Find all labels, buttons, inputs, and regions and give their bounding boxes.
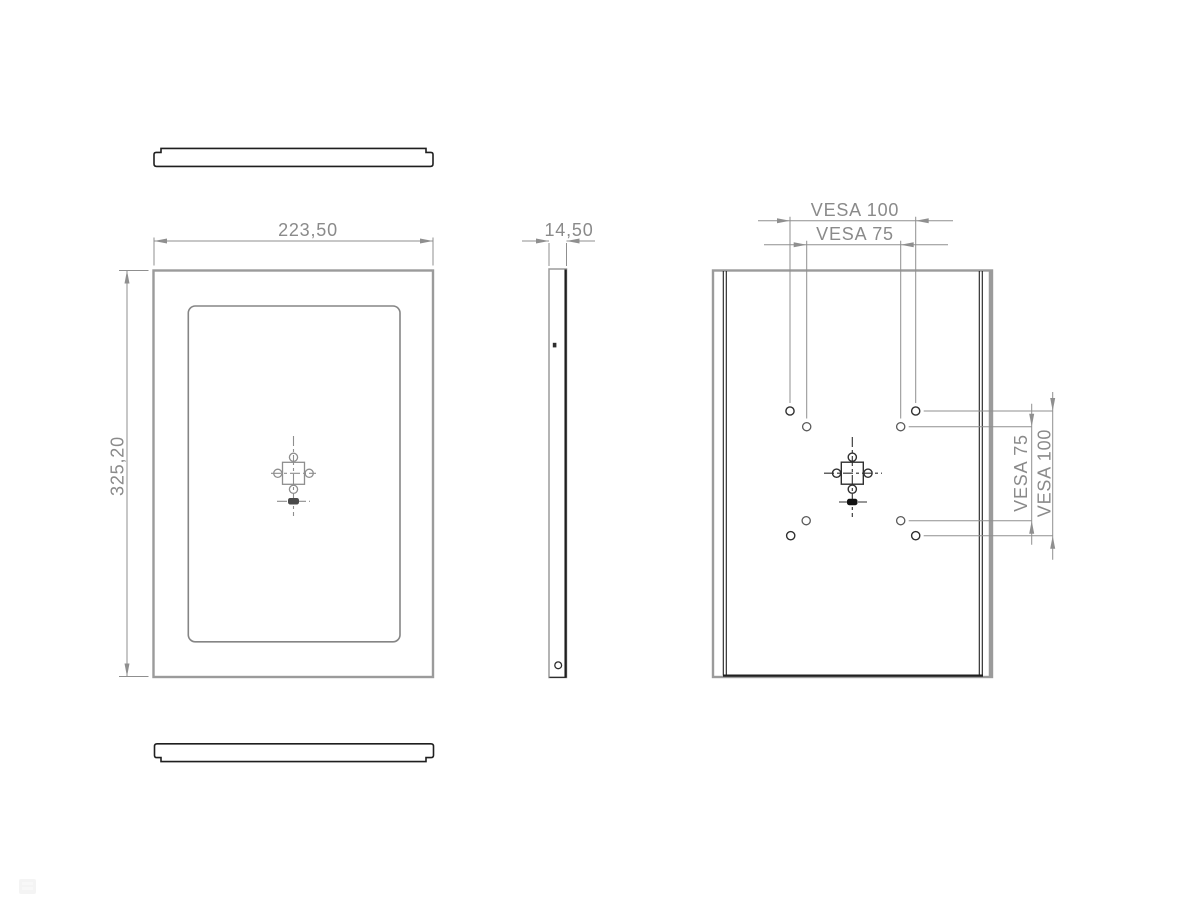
arrowhead-bottom — [1050, 536, 1055, 549]
dim-side-depth-label: 14,50 — [544, 220, 593, 240]
arrowhead-right — [420, 239, 433, 244]
dim-vesa75-horizontal-label: VESA 75 — [816, 224, 894, 244]
dim-vesa75-vertical-label: VESA 75 — [1011, 434, 1031, 512]
arrowhead-bottom — [1029, 521, 1034, 534]
vesa75-hole-bottom-right — [897, 517, 905, 525]
vesa75-hole-bottom-left — [802, 517, 810, 525]
technical-drawing: 223,50 325,20 14,50 — [0, 0, 1200, 900]
arrowhead-left — [154, 239, 167, 244]
arrowhead-right — [901, 242, 914, 247]
vesa75-hole-top-right — [897, 423, 905, 431]
vesa100-hole-bottom-left — [787, 532, 795, 540]
dim-side-depth: 14,50 — [522, 220, 595, 266]
front-screen-cutout — [188, 306, 400, 642]
vesa100-hole-bottom-right — [912, 532, 920, 540]
dim-front-height: 325,20 — [108, 271, 149, 677]
arrowhead-left — [777, 218, 790, 223]
arrowhead-top — [1029, 414, 1034, 427]
bottom-view — [155, 744, 434, 762]
arrowhead-left — [794, 242, 807, 247]
mount-slot — [288, 498, 299, 505]
bottom-view-profile — [155, 744, 434, 762]
dim-vesa75-vertical: VESA 75 — [909, 404, 1034, 545]
side-hole-mark — [553, 343, 557, 348]
dim-front-width-label: 223,50 — [278, 220, 338, 240]
top-view — [154, 148, 433, 166]
vesa-75-holes — [802, 423, 905, 525]
arrowhead-bottom — [125, 664, 130, 677]
dim-vesa100-vertical-label: VESA 100 — [1035, 429, 1055, 517]
front-view: 223,50 325,20 — [108, 220, 434, 677]
back-view: VESA 100 VESA 75 VESA 75 VESA 100 — [713, 200, 1055, 677]
front-center-mount-detail — [271, 436, 316, 516]
vesa100-hole-top-right — [912, 407, 920, 415]
vesa75-hole-top-left — [803, 423, 811, 431]
drawing-canvas: 223,50 325,20 14,50 — [0, 0, 1200, 900]
arrowhead-right — [916, 218, 929, 223]
back-center-mount-detail — [824, 437, 882, 517]
arrowhead-top — [1050, 398, 1055, 411]
side-bottom-hole — [555, 662, 562, 669]
dim-vesa75-horizontal: VESA 75 — [764, 224, 948, 419]
mount-slot — [847, 499, 858, 505]
watermark — [19, 879, 36, 894]
side-view: 14,50 — [522, 220, 595, 678]
dim-vesa100-horizontal-label: VESA 100 — [811, 200, 899, 220]
dim-front-height-label: 325,20 — [108, 436, 128, 496]
dim-front-width: 223,50 — [154, 220, 433, 266]
side-outline — [549, 269, 567, 678]
arrowhead-top — [125, 271, 130, 284]
vesa100-hole-top-left — [786, 407, 794, 415]
top-view-profile — [154, 148, 433, 166]
